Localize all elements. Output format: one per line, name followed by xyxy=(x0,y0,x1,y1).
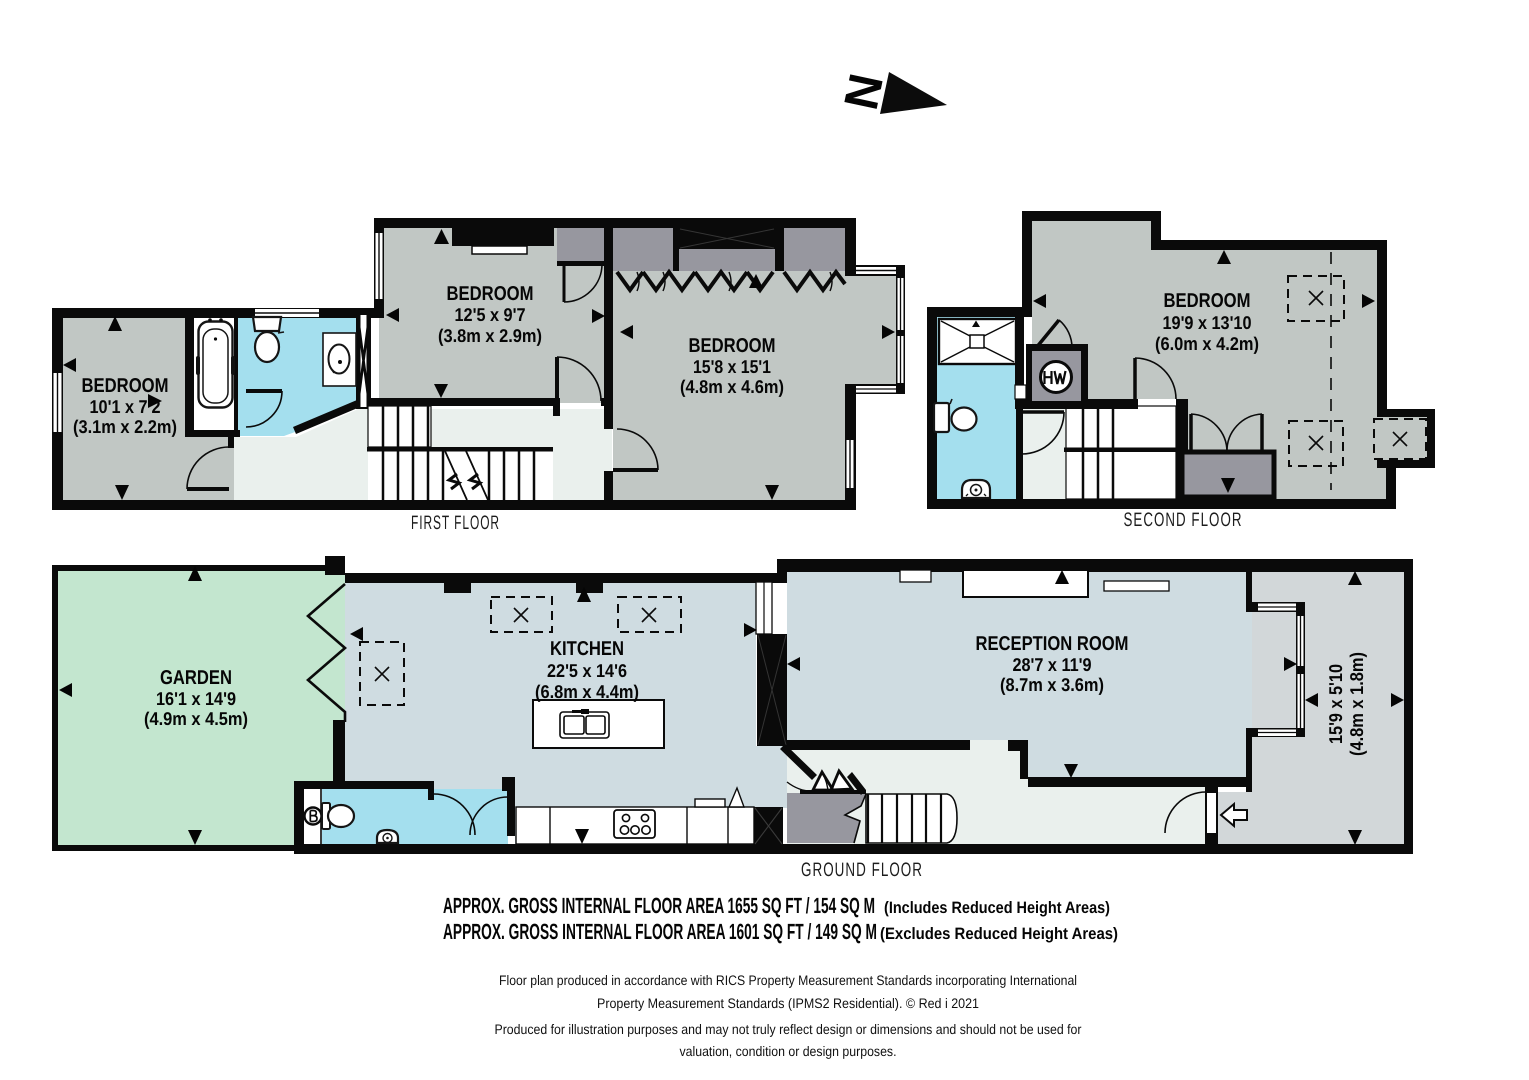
svg-text:28'7 x 11'9: 28'7 x 11'9 xyxy=(1013,654,1092,675)
svg-text:19'9 x 13'10: 19'9 x 13'10 xyxy=(1163,312,1252,333)
svg-text:15'8 x 15'1: 15'8 x 15'1 xyxy=(693,356,771,377)
svg-text:(Excludes Reduced Height Areas: (Excludes Reduced Height Areas) xyxy=(880,925,1118,943)
svg-text:Property Measurement Standards: Property Measurement Standards (IPMS2 Re… xyxy=(597,996,979,1011)
svg-text:(4.8m x 4.6m): (4.8m x 4.6m) xyxy=(680,376,784,397)
svg-text:Floor plan produced in accorda: Floor plan produced in accordance with R… xyxy=(499,973,1077,988)
svg-text:RECEPTION ROOM: RECEPTION ROOM xyxy=(976,633,1129,655)
svg-text:(Includes Reduced Height Areas: (Includes Reduced Height Areas) xyxy=(884,899,1110,917)
svg-text:(3.1m x 2.2m): (3.1m x 2.2m) xyxy=(73,416,177,437)
svg-text:valuation, condition or design: valuation, condition or design purposes. xyxy=(680,1044,897,1059)
svg-text:BEDROOM: BEDROOM xyxy=(1164,290,1251,312)
svg-text:(6.8m x 4.4m): (6.8m x 4.4m) xyxy=(535,681,639,702)
svg-text:(4.9m x 4.5m): (4.9m x 4.5m) xyxy=(144,708,248,729)
svg-text:(8.7m x 3.6m): (8.7m x 3.6m) xyxy=(1000,674,1104,695)
svg-text:(4.8m x 1.8m): (4.8m x 1.8m) xyxy=(1346,652,1367,756)
svg-text:GROUND FLOOR: GROUND FLOOR xyxy=(801,859,923,881)
svg-text:22'5 x 14'6: 22'5 x 14'6 xyxy=(547,660,627,681)
svg-text:(6.0m x 4.2m): (6.0m x 4.2m) xyxy=(1155,333,1259,354)
svg-text:FIRST FLOOR: FIRST FLOOR xyxy=(411,512,500,534)
svg-text:16'1 x 14'9: 16'1 x 14'9 xyxy=(156,688,236,709)
svg-text:BEDROOM: BEDROOM xyxy=(689,335,776,357)
svg-text:KITCHEN: KITCHEN xyxy=(550,638,624,660)
svg-text:BEDROOM: BEDROOM xyxy=(82,375,169,397)
svg-text:BEDROOM: BEDROOM xyxy=(447,283,534,305)
svg-text:APPROX. GROSS INTERNAL FLOOR A: APPROX. GROSS INTERNAL FLOOR AREA 1601 S… xyxy=(443,919,877,944)
svg-text:GARDEN: GARDEN xyxy=(160,667,232,689)
svg-text:10'1 x 7'2: 10'1 x 7'2 xyxy=(90,396,161,417)
svg-text:(3.8m x 2.9m): (3.8m x 2.9m) xyxy=(438,325,542,346)
svg-text:SECOND FLOOR: SECOND FLOOR xyxy=(1124,509,1243,531)
svg-text:15'9 x 5'10: 15'9 x 5'10 xyxy=(1325,664,1346,744)
svg-text:12'5 x 9'7: 12'5 x 9'7 xyxy=(455,304,526,325)
svg-text:Produced for illustration purp: Produced for illustration purposes and m… xyxy=(495,1022,1082,1037)
svg-text:APPROX. GROSS INTERNAL FLOOR A: APPROX. GROSS INTERNAL FLOOR AREA 1655 S… xyxy=(443,893,875,918)
